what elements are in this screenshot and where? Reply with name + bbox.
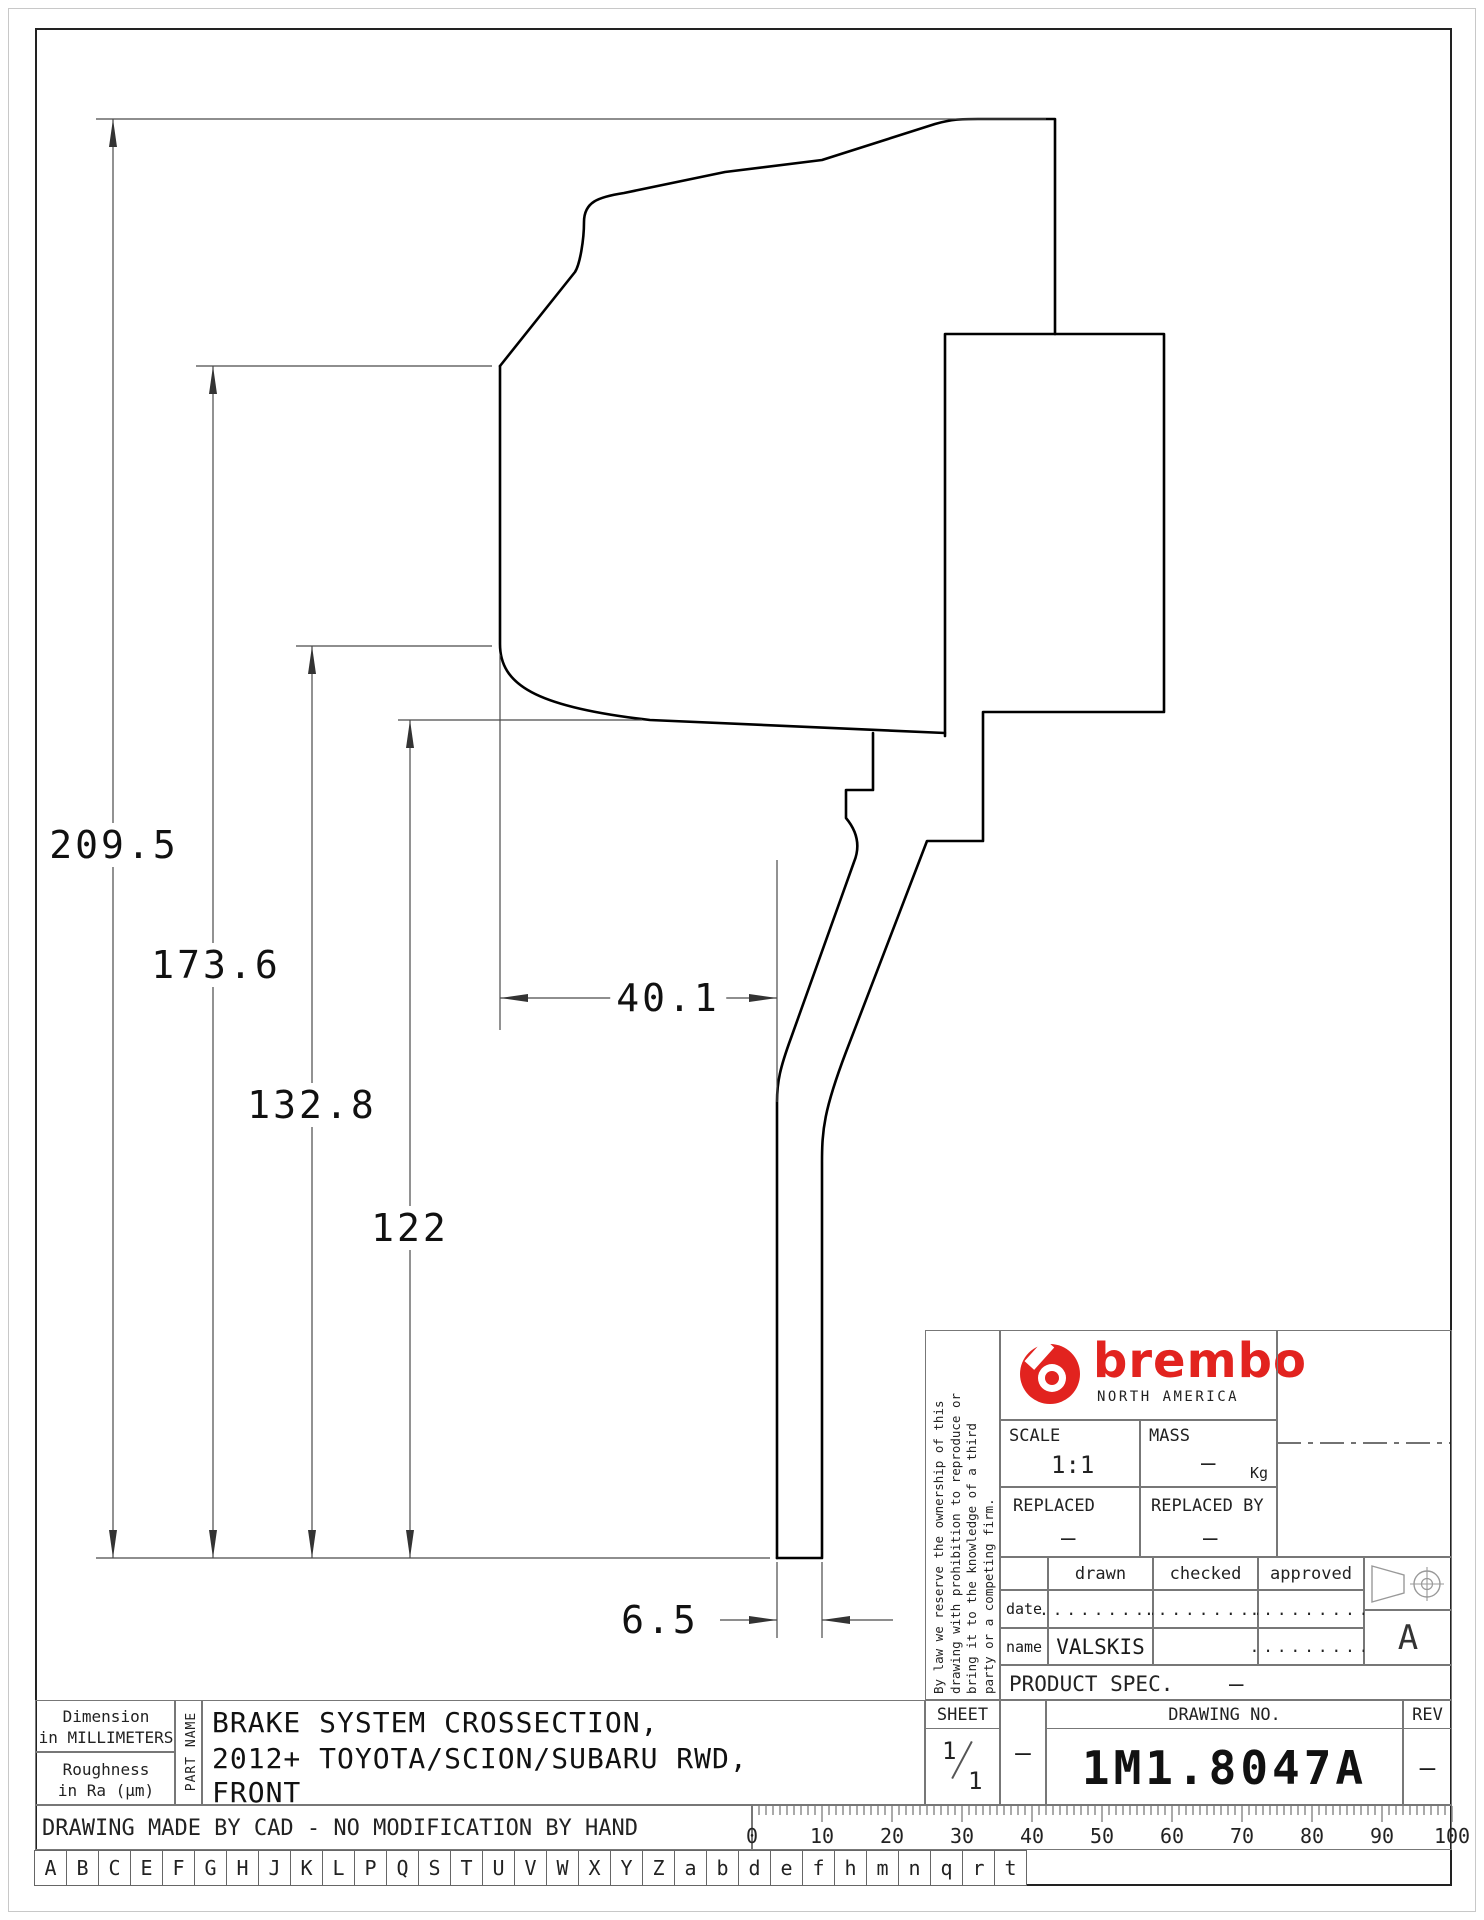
ruler-number: 60 — [1160, 1824, 1184, 1848]
approval-corner-cell — [1000, 1557, 1048, 1590]
projection-symbol-icon — [1368, 1561, 1448, 1607]
roughness-note-line2: in Ra (μm) — [36, 1780, 176, 1801]
product-spec-cell: PRODUCT SPEC. – — [1000, 1665, 1452, 1700]
letter-cell: V — [514, 1850, 547, 1886]
sheet-separator-cell: – — [1000, 1700, 1046, 1805]
letter-cell: S — [418, 1850, 451, 1886]
ruler-number: 90 — [1370, 1824, 1394, 1848]
ruler-number: 100 — [1434, 1824, 1470, 1848]
rev-cell: REV – — [1403, 1700, 1452, 1805]
replaced-value: – — [1061, 1524, 1075, 1552]
letter-cell: G — [194, 1850, 227, 1886]
drawn-header-cell: drawn — [1048, 1557, 1153, 1590]
letter-cell: Z — [642, 1850, 675, 1886]
legal-line-4: party or a competing firm. — [981, 1338, 998, 1694]
scale-label: SCALE — [1009, 1426, 1060, 1446]
letter-cell: m — [866, 1850, 899, 1886]
dim-label-plate-height: 122 — [365, 1206, 455, 1250]
legal-line-3: bring it to the knowledge of a third — [964, 1338, 981, 1694]
dim-label-overall-height: 209.5 — [43, 823, 184, 867]
part-outline-top — [500, 119, 1055, 366]
name-approved-value: ......... — [1250, 1637, 1373, 1656]
drawing-no-value: 1M1.8047A — [1082, 1741, 1367, 1795]
dimension-note-cell: Dimension in MILLIMETERS — [35, 1700, 175, 1752]
part-name-line-1: BRAKE SYSTEM CROSSECTION, — [212, 1706, 658, 1739]
product-spec-value: – — [1229, 1670, 1243, 1698]
letter-cell: W — [546, 1850, 579, 1886]
letter-cell: F — [162, 1850, 195, 1886]
brand-region: NORTH AMERICA — [1097, 1389, 1239, 1405]
letter-cell: a — [674, 1850, 707, 1886]
ruler-number: 30 — [950, 1824, 974, 1848]
legal-line-2: drawing with prohibition to reproduce or — [948, 1338, 965, 1694]
brembo-logo-icon — [1017, 1341, 1083, 1407]
date-approved-cell: ......... — [1258, 1590, 1364, 1628]
part-name-label: PART NAME — [180, 1702, 202, 1801]
projection-cell — [1364, 1557, 1452, 1610]
letter-cell: b — [706, 1850, 739, 1886]
letter-cell: X — [578, 1850, 611, 1886]
letter-cell: r — [962, 1850, 995, 1886]
mass-label: MASS — [1149, 1426, 1190, 1446]
view-marker-cell: A — [1364, 1610, 1452, 1665]
ruler-number: 80 — [1300, 1824, 1324, 1848]
checked-header: checked — [1170, 1564, 1242, 1584]
ruler-numbers: 0102030405060708090100 — [752, 1824, 1452, 1846]
drawing-sheet: 209.5 173.6 132.8 122 40.1 6.5 By law we… — [0, 0, 1484, 1920]
brand-wordmark: brembo — [1093, 1333, 1307, 1389]
name-checked-cell — [1153, 1628, 1258, 1665]
name-drawn-value: VALSKIS — [1056, 1635, 1145, 1659]
name-label: name — [1006, 1638, 1042, 1656]
ruler-number: 70 — [1230, 1824, 1254, 1848]
dimension-note-line1: Dimension — [36, 1706, 176, 1727]
letter-strip: ABCEFGHJKLPQSTUVWXYZabdefhmnqrt — [35, 1850, 1027, 1886]
legal-line-1: By law we reserve the ownership of this — [931, 1338, 948, 1694]
sheet-numerator: 1 — [942, 1737, 956, 1765]
date-label: date — [1006, 1600, 1042, 1618]
scale-cell: SCALE 1:1 — [1000, 1420, 1140, 1487]
dim-label-plate-thickness: 6.5 — [615, 1598, 705, 1642]
drawing-no-label: DRAWING NO. — [1168, 1705, 1281, 1725]
product-spec-label: PRODUCT SPEC. — [1009, 1672, 1173, 1696]
letter-cell: C — [98, 1850, 131, 1886]
dim-label-hat-depth: 40.1 — [610, 976, 726, 1020]
mass-cell: MASS – Kg — [1140, 1420, 1277, 1487]
scale-value: 1:1 — [1051, 1451, 1094, 1479]
sheet-cell: SHEET 1 1 — [925, 1700, 1000, 1805]
letter-cell: L — [322, 1850, 355, 1886]
sheet-separator: – — [1015, 1738, 1031, 1768]
name-label-cell: name — [1000, 1628, 1048, 1665]
ruler-number: 10 — [810, 1824, 834, 1848]
letter-cell: h — [834, 1850, 867, 1886]
letter-cell: E — [130, 1850, 163, 1886]
date-drawn-cell: ......... — [1048, 1590, 1153, 1628]
letter-cell: n — [898, 1850, 931, 1886]
letter-cell: d — [738, 1850, 771, 1886]
ruler-number: 40 — [1020, 1824, 1044, 1848]
approved-header-cell: approved — [1258, 1557, 1364, 1590]
extension-lines — [96, 119, 1046, 1638]
replaced-cell: REPLACED – — [1000, 1487, 1140, 1557]
dim-label-mid-height: 132.8 — [241, 1083, 382, 1127]
letter-cell: A — [34, 1850, 67, 1886]
letter-cell: J — [258, 1850, 291, 1886]
letter-cell: Q — [386, 1850, 419, 1886]
sheet-label: SHEET — [937, 1705, 988, 1725]
dimension-arrowheads — [109, 119, 850, 1624]
letter-cell: T — [450, 1850, 483, 1886]
centerline-cell — [1277, 1330, 1452, 1557]
approved-header: approved — [1270, 1564, 1352, 1584]
view-marker: A — [1398, 1618, 1418, 1658]
letter-cell: t — [994, 1850, 1027, 1886]
letter-cell: e — [770, 1850, 803, 1886]
letter-cell: H — [226, 1850, 259, 1886]
sheet-denominator: 1 — [968, 1767, 982, 1795]
date-checked-value: ......... — [1144, 1600, 1267, 1619]
letter-cell: B — [66, 1850, 99, 1886]
part-outline-left — [500, 366, 945, 733]
part-name-line-2: 2012+ TOYOTA/SCION/SUBARU RWD, — [212, 1742, 748, 1775]
letter-cell: f — [802, 1850, 835, 1886]
replaced-by-label: REPLACED BY — [1151, 1496, 1264, 1516]
letter-cell: Y — [610, 1850, 643, 1886]
name-drawn-cell: VALSKIS — [1048, 1628, 1153, 1665]
cad-note-cell: DRAWING MADE BY CAD - NO MODIFICATION BY… — [35, 1805, 752, 1850]
legal-text: By law we reserve the ownership of this … — [931, 1338, 997, 1694]
letter-cell: K — [290, 1850, 323, 1886]
rev-value: – — [1420, 1753, 1436, 1783]
dimension-note-line2: in MILLIMETERS — [36, 1727, 176, 1748]
letter-cell: P — [354, 1850, 387, 1886]
dim-label-hat-height: 173.6 — [145, 943, 286, 987]
checked-header-cell: checked — [1153, 1557, 1258, 1590]
drawn-header: drawn — [1075, 1564, 1126, 1584]
mass-unit: Kg — [1250, 1464, 1268, 1482]
mass-value: – — [1201, 1449, 1215, 1477]
ruler-number: 50 — [1090, 1824, 1114, 1848]
replaced-by-cell: REPLACED BY – — [1140, 1487, 1277, 1557]
cad-note: DRAWING MADE BY CAD - NO MODIFICATION BY… — [42, 1816, 638, 1841]
replaced-by-value: – — [1203, 1524, 1217, 1552]
letter-cell: q — [930, 1850, 963, 1886]
letter-cell: U — [482, 1850, 515, 1886]
roughness-note-line1: Roughness — [36, 1759, 176, 1780]
brand-cell: brembo NORTH AMERICA — [1000, 1330, 1277, 1420]
ruler-number: 0 — [746, 1824, 758, 1848]
roughness-note-cell: Roughness in Ra (μm) — [35, 1752, 175, 1805]
ruler-number: 20 — [880, 1824, 904, 1848]
drawing-no-cell: DRAWING NO. 1M1.8047A — [1046, 1700, 1403, 1805]
date-approved-value: ......... — [1250, 1600, 1373, 1619]
rev-label: REV — [1412, 1705, 1443, 1725]
part-outline-transition — [777, 733, 873, 1558]
date-checked-cell: ......... — [1153, 1590, 1258, 1628]
name-approved-cell: ......... — [1258, 1628, 1364, 1665]
replaced-label: REPLACED — [1013, 1496, 1095, 1516]
